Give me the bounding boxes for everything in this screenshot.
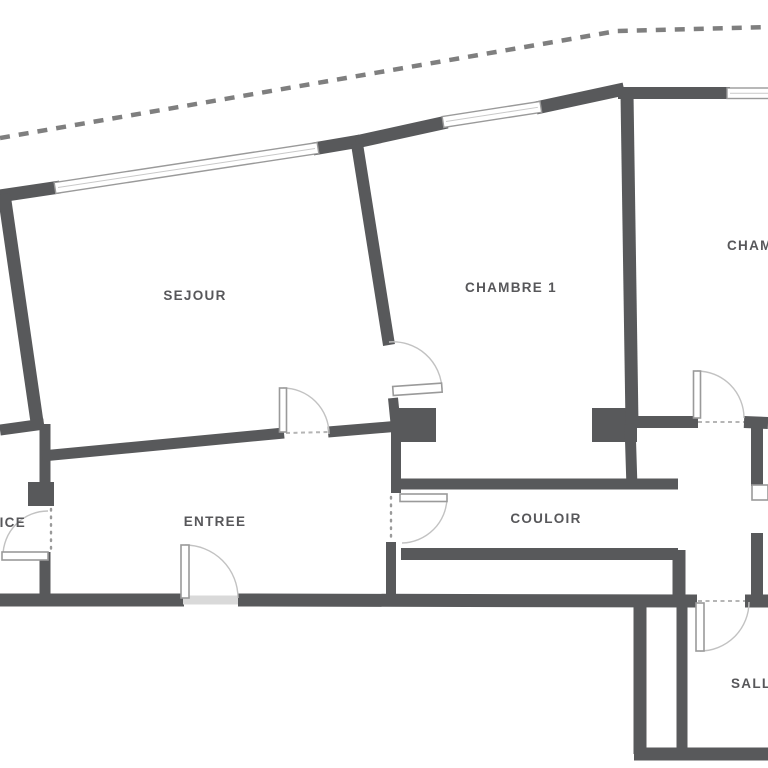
door-sejour-chambre1 [389,342,442,396]
boundary-dashed-line [0,27,768,138]
room-label-entree: ENTREE [184,514,247,529]
door-entree-couloir [391,494,447,543]
window-sejour [54,143,319,194]
door-salle [696,601,749,651]
door-sejour-entree [280,388,330,434]
floor-plan-page: SEJOUR CHAMBRE 1 CHAM ENTREE COULOIR ICE… [0,0,768,768]
room-label-sejour: SEJOUR [163,288,226,303]
floor-plan-drawing: SEJOUR CHAMBRE 1 CHAM ENTREE COULOIR ICE… [0,0,768,768]
window-chambre2 [727,88,768,99]
room-label-couloir: COULOIR [510,511,581,526]
windows [54,88,768,193]
window-chambre1 [442,101,542,127]
room-label-chambre2: CHAM [727,238,768,253]
room-label-salle: SALL [731,676,768,691]
room-label-service: ICE [0,515,26,530]
interior-walls [0,94,768,754]
room-label-chambre1: CHAMBRE 1 [465,280,557,295]
door-right-edge [752,485,768,500]
door-chambre2 [694,371,745,422]
pier-left [399,408,436,442]
door-entree-main [181,545,238,605]
